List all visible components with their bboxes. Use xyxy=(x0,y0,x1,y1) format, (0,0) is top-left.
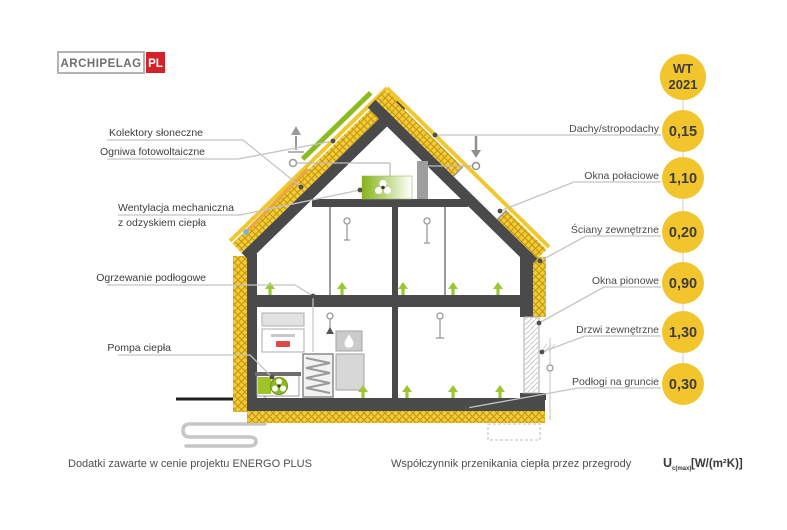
leader-ext-walls xyxy=(540,236,661,261)
energy-diagram-page: Kolektory słoneczne Ogniwa fotowoltaiczn… xyxy=(0,0,787,530)
uvalue-circle-vert-windows: 0,90 xyxy=(662,262,704,304)
label-solar-collectors: Kolektory słoneczne xyxy=(109,127,203,139)
kitchen-cabinet xyxy=(262,313,304,326)
uvalue-circle-ext-doors: 1,30 xyxy=(662,311,704,353)
intermediate-floor xyxy=(257,295,520,307)
buffer-tank xyxy=(303,354,333,397)
svg-text:0,90: 0,90 xyxy=(669,276,697,292)
label-photovoltaic: Ogniwa fotowoltaiczne xyxy=(100,146,205,158)
label-ext-doors: Drzwi zewnętrzne xyxy=(576,324,659,336)
u-formula: U c(max) [W/(m²K)] xyxy=(663,454,743,474)
uvalue-circle-roof-windows: 1,10 xyxy=(662,157,704,199)
footer-left-text: Dodatki zawarte w cenie projektu ENERGO … xyxy=(68,458,312,470)
label-ext-walls: Ściany zewnętrzne xyxy=(571,223,659,236)
svg-text:1,10: 1,10 xyxy=(669,171,697,187)
footer-right-text: Współczynnik przenikania ciepła przez pr… xyxy=(391,458,632,470)
vertical-window xyxy=(524,317,539,393)
label-roofs: Dachy/stropodachy xyxy=(569,123,660,135)
ventilation-unit xyxy=(362,176,412,199)
uvalue-circle-roofs: 0,15 xyxy=(662,110,704,152)
label-ventilation-line1: Wentylacja mechaniczna xyxy=(118,202,234,214)
badge-line1: WT xyxy=(673,61,693,76)
footer: Dodatki zawarte w cenie projektu ENERGO … xyxy=(68,454,743,474)
label-vert-windows: Okna pionowe xyxy=(592,275,659,287)
left-feature-labels: Kolektory słoneczne Ogniwa fotowoltaiczn… xyxy=(96,127,234,354)
attic-ceiling xyxy=(312,199,468,207)
label-roof-windows: Okna połaciowe xyxy=(584,170,659,182)
u-subscript: c(max) xyxy=(672,466,691,472)
house-cross-section-diagram: Kolektory słoneczne Ogniwa fotowoltaiczn… xyxy=(0,0,787,530)
heat-pump-unit xyxy=(255,372,301,396)
label-ground-floors: Podłogi na gruncie xyxy=(572,376,659,388)
logo-text: ARCHIPELAG xyxy=(60,58,141,70)
center-wall xyxy=(392,207,398,398)
leader-floor-heating xyxy=(107,285,313,296)
uvalue-column: WT 2021 0,15 1,10 0,20 0,90 1,30 0,30 xyxy=(660,54,706,405)
water-heater xyxy=(336,331,364,390)
wt-2021-badge: WT 2021 xyxy=(660,54,706,100)
u-units: [W/(m²K)] xyxy=(691,458,743,470)
label-floor-heating: Ogrzewanie podłogowe xyxy=(96,272,206,284)
svg-text:0,20: 0,20 xyxy=(669,225,697,241)
leader-roof-windows xyxy=(500,182,661,211)
leader-ext-doors xyxy=(542,336,661,352)
label-heat-pump: Pompa ciepła xyxy=(107,342,171,354)
logo-suffix: PL xyxy=(148,58,163,70)
control-panel xyxy=(262,329,304,352)
right-uvalue-labels: Dachy/stropodachy Okna połaciowe Ściany … xyxy=(569,123,660,388)
exhaust-duct xyxy=(417,161,428,199)
archipelag-logo: ARCHIPELAG PL xyxy=(58,52,165,73)
uvalue-circle-ext-walls: 0,20 xyxy=(662,211,704,253)
svg-text:1,30: 1,30 xyxy=(669,325,697,341)
left-wall xyxy=(233,254,257,412)
label-ventilation-line2: z odzyskiem ciepła xyxy=(118,217,206,229)
u-symbol: U xyxy=(663,456,672,470)
leader-vert-windows xyxy=(539,287,661,323)
uvalue-circle-ground-floors: 0,30 xyxy=(662,363,704,405)
badge-line2: 2021 xyxy=(669,77,698,92)
svg-text:0,30: 0,30 xyxy=(669,377,697,393)
measure-symbols xyxy=(326,218,444,338)
svg-text:0,15: 0,15 xyxy=(669,124,697,140)
